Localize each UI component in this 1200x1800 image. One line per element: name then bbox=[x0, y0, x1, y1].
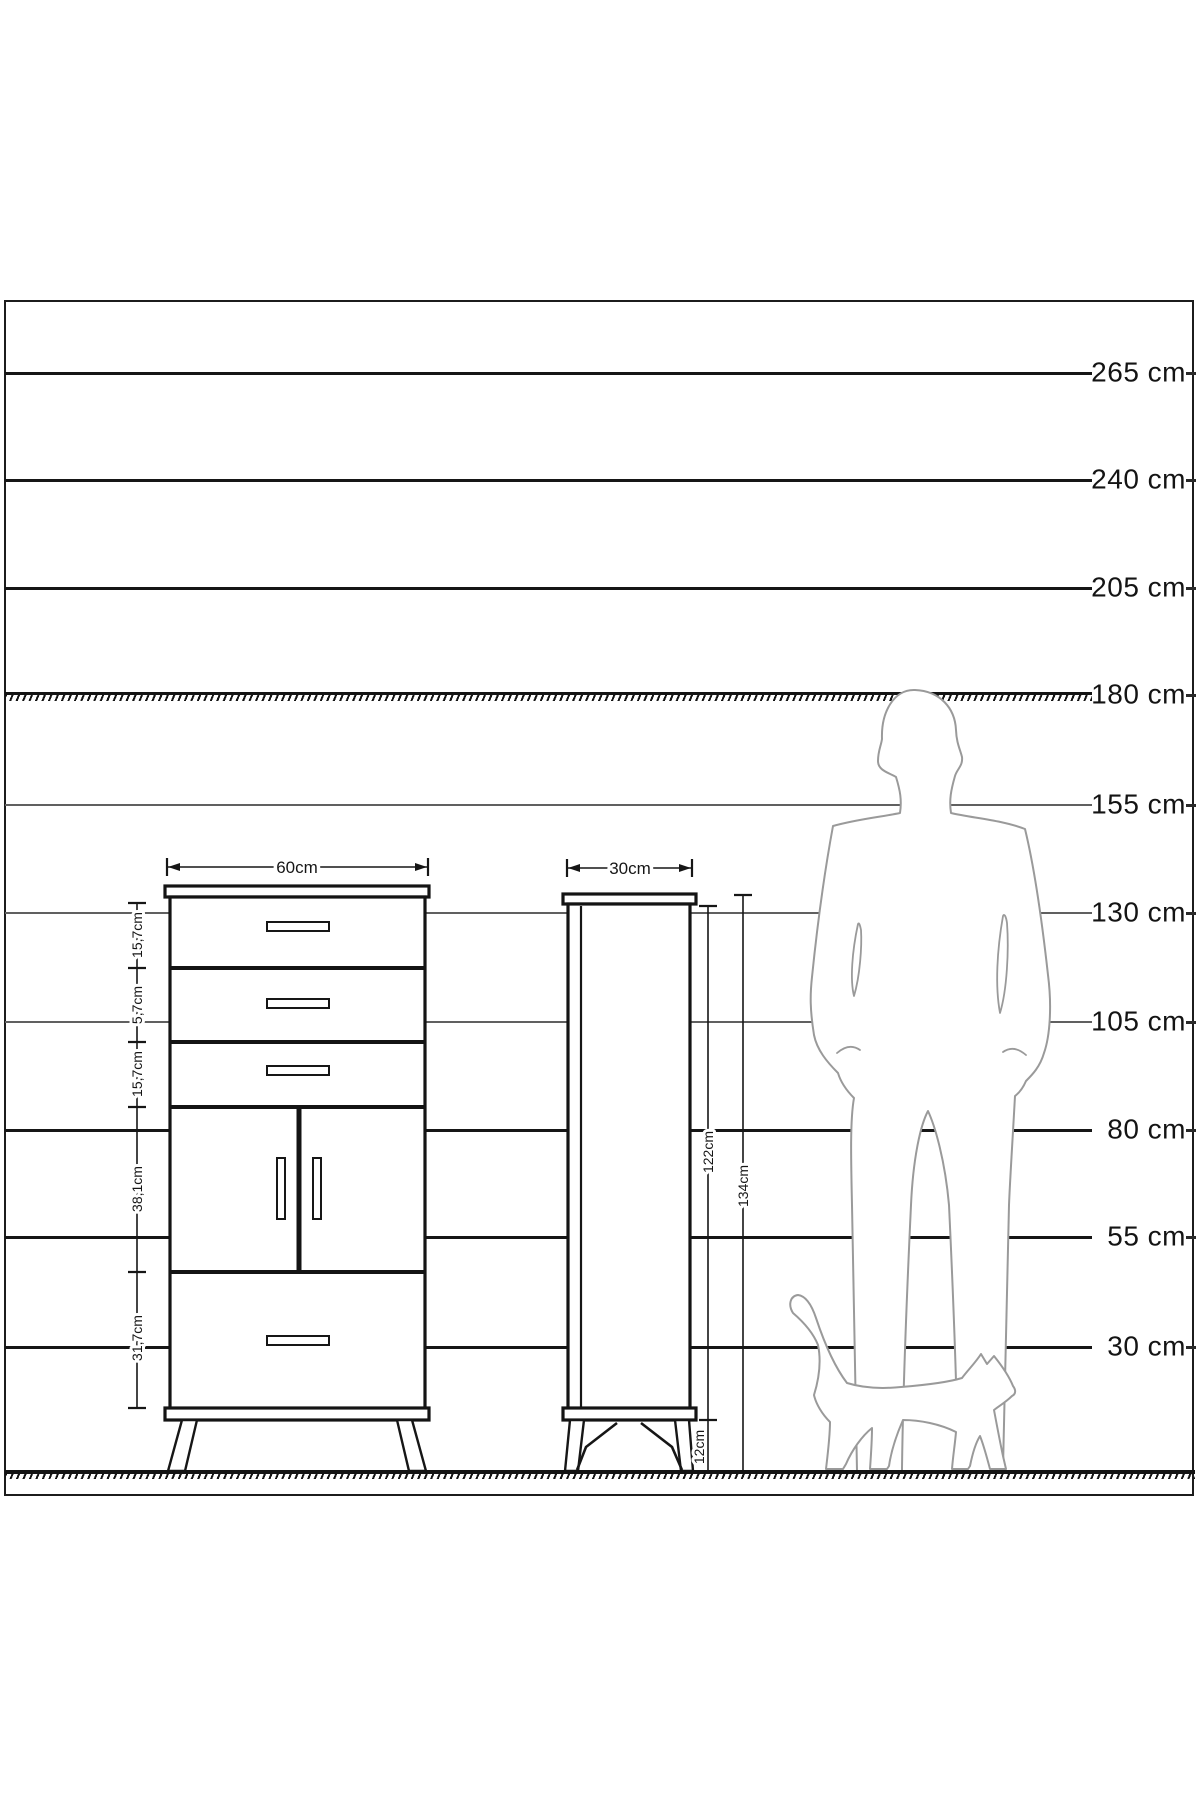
front-top-board bbox=[165, 886, 429, 897]
ground-line bbox=[5, 1470, 1195, 1479]
scale-tick-130 bbox=[1186, 912, 1196, 915]
side-total-height-label: 134cm bbox=[735, 1165, 751, 1207]
side-body bbox=[568, 904, 690, 1410]
front-left-leg bbox=[168, 1420, 197, 1471]
side-width-label: 30cm bbox=[609, 859, 651, 878]
front-segment-label-bottom-drawer: 31,7cm bbox=[129, 1315, 145, 1361]
scale-label-265: 265 cm bbox=[1091, 356, 1186, 388]
scale-label-30: 30 cm bbox=[1107, 1330, 1186, 1362]
left-door-handle bbox=[277, 1158, 285, 1219]
side-width-arrow-right bbox=[679, 864, 691, 872]
scale-label-155: 155 cm bbox=[1091, 788, 1186, 820]
scale-tick-265 bbox=[1186, 372, 1196, 375]
scale-label-180: 180 cm bbox=[1091, 678, 1186, 710]
scale-tick-30 bbox=[1186, 1346, 1196, 1349]
side-bottom-board bbox=[563, 1408, 696, 1420]
scale-label-55: 55 cm bbox=[1107, 1220, 1186, 1252]
scale-tick-240 bbox=[1186, 479, 1196, 482]
front-segment-label-drawer1: 15,7cm bbox=[129, 912, 145, 958]
man-outline bbox=[811, 690, 1050, 1471]
scale-tick-55 bbox=[1186, 1236, 1196, 1239]
front-segment-label-doors: 38,1cm bbox=[129, 1166, 145, 1212]
scale-label-205: 205 cm bbox=[1091, 571, 1186, 603]
drawer2-handle bbox=[267, 999, 329, 1008]
side-width-arrow-left bbox=[568, 864, 580, 872]
drawer1-handle bbox=[267, 922, 329, 931]
bottom-drawer-handle bbox=[267, 1336, 329, 1345]
cabinet-side-view: 30cm 122cm 12cm 134cm bbox=[563, 859, 752, 1471]
cabinet-front-view: 60cm bbox=[128, 858, 429, 1471]
right-door-handle bbox=[313, 1158, 321, 1219]
scale-tick-180 bbox=[1186, 694, 1196, 697]
front-width-arrow-right bbox=[415, 863, 427, 871]
side-body-height-label: 122cm bbox=[700, 1131, 716, 1173]
scale-label-130: 130 cm bbox=[1091, 896, 1186, 928]
dimension-diagram: 265 cm 240 cm 205 cm 180 cm 155 cm 130 c… bbox=[0, 0, 1200, 1800]
scale-label-80: 80 cm bbox=[1107, 1113, 1186, 1145]
front-width-arrow-left bbox=[168, 863, 180, 871]
man-silhouette bbox=[811, 690, 1050, 1471]
front-segment-label-drawer3: 15,7cm bbox=[129, 1051, 145, 1097]
front-bottom-board bbox=[165, 1408, 429, 1420]
front-segment-label-drawer2: 5,7cm bbox=[129, 986, 145, 1024]
scale-label-105: 105 cm bbox=[1091, 1005, 1186, 1037]
side-leg-height-label: 12cm bbox=[691, 1430, 707, 1464]
scale-label-240: 240 cm bbox=[1091, 463, 1186, 495]
side-left-leg bbox=[565, 1420, 584, 1471]
scale-tick-205 bbox=[1186, 587, 1196, 590]
scale-tick-105 bbox=[1186, 1021, 1196, 1024]
drawing-layer: 60cm bbox=[0, 0, 1200, 1800]
front-right-leg bbox=[397, 1420, 426, 1471]
front-width-label: 60cm bbox=[276, 858, 318, 877]
drawer3-handle bbox=[267, 1066, 329, 1075]
scale-tick-155 bbox=[1186, 804, 1196, 807]
scale-tick-80 bbox=[1186, 1129, 1196, 1132]
